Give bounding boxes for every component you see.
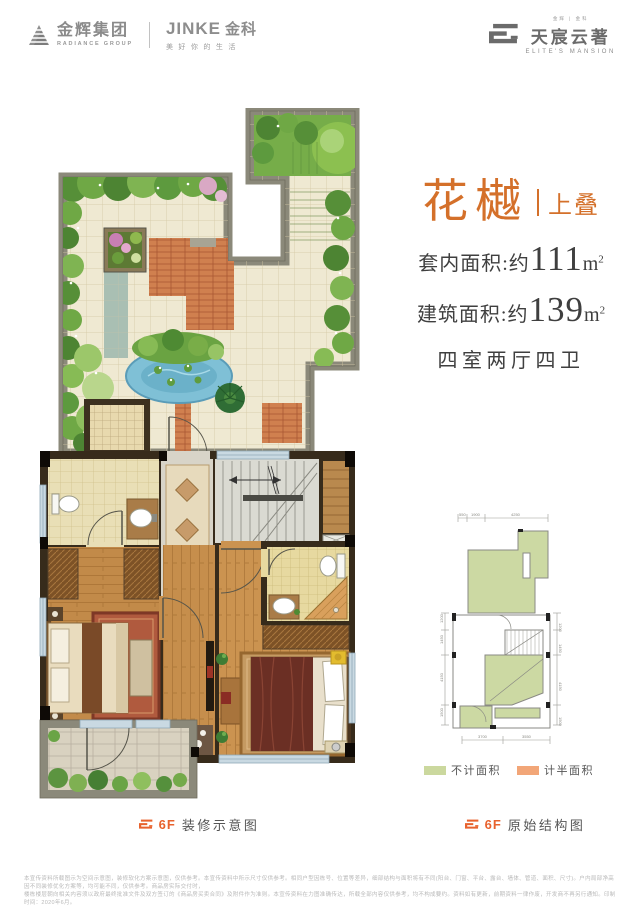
bathroom-2	[261, 541, 355, 625]
legend-no-area: 不计面积	[424, 762, 501, 778]
caption-left-label: 装修示意图	[182, 815, 260, 834]
structural-diagram: 550 1900 4250 1200 1450 4150 1500 1200 1…	[440, 503, 615, 758]
dim-left-2: 1450	[440, 634, 444, 644]
estate-sub: ELITE'S MANSION	[526, 49, 617, 55]
roof-garden	[56, 108, 360, 458]
dim-top-1: 550	[459, 512, 466, 517]
dim-bottom-2: 3550	[522, 734, 532, 739]
cloud-mark-icon	[465, 819, 479, 831]
dim-right-1: 1200	[558, 623, 563, 633]
build-area-row: 建筑面积:约139m2	[395, 290, 627, 330]
jinke-cn: 金科	[225, 18, 257, 39]
no-area-label: 不计面积	[451, 762, 501, 778]
no-area-swatch	[424, 766, 446, 775]
caption-right-floor: 6F	[485, 817, 502, 832]
dim-right-3: 4150	[558, 682, 563, 692]
master-bedroom	[46, 547, 159, 723]
interior-floor	[40, 451, 355, 798]
lower-terrace	[40, 720, 197, 798]
inner-area-label: 套内面积:约	[418, 247, 530, 276]
title-divider	[537, 189, 539, 216]
mountain-icon	[26, 22, 52, 48]
jinke-name: JINKE	[166, 19, 221, 39]
cloud-mark-icon	[139, 819, 153, 831]
jinke-logo: JINKE 金科 美好你的生活	[166, 18, 257, 52]
inner-area-row: 套内面积:约111m2	[395, 239, 627, 279]
dim-bottom-1: 3700	[478, 734, 488, 739]
floorplan-illustration	[38, 108, 360, 800]
build-area-label: 建筑面积:约	[417, 298, 529, 327]
legend-half-area: 计半面积	[517, 762, 594, 778]
caption-left-floor: 6F	[159, 817, 176, 832]
jinke-tagline: 美好你的生活	[166, 42, 257, 52]
dim-left-4: 1500	[440, 707, 444, 717]
dim-right-2: 1450	[558, 644, 563, 654]
unit-info: 花樾 上叠 套内面积:约111m2 建筑面积:约139m2 四室两厅四卫	[395, 176, 627, 373]
build-area-value: 139	[529, 290, 585, 330]
caption-right: 6F 原始结构图	[430, 815, 620, 834]
dim-top-2: 1900	[471, 512, 481, 517]
dim-left-3: 4150	[440, 672, 444, 682]
unit-title: 花樾	[422, 176, 528, 228]
estate-mark-icon	[489, 22, 519, 49]
area-legend: 不计面积 计半面积	[424, 762, 594, 778]
bathroom-1	[48, 459, 159, 548]
staircase	[215, 459, 319, 543]
header-left: 金辉集团 RADIANCE GROUP JINKE 金科 美好你的生活	[26, 18, 257, 52]
dim-top-3: 4250	[511, 512, 521, 517]
disclaimer-line-1: 本宣传资料所载图示为空间示意图，装修软化方案示意图，仅供参考。本宣传资料中所示尺…	[24, 875, 618, 891]
unit-tag: 上叠	[548, 185, 600, 220]
header-divider	[149, 22, 150, 48]
radiance-logo: 金辉集团 RADIANCE GROUP	[26, 22, 133, 48]
half-area-swatch	[517, 766, 539, 775]
rooms-summary: 四室两厅四卫	[395, 344, 627, 373]
header-right: 金辉 | 金科 天宸云著 ELITE'S MANSION	[489, 16, 617, 55]
inner-area-value: 111	[530, 239, 583, 279]
estate-top: 金辉 | 金科	[553, 16, 589, 22]
dim-right-4: 1500	[558, 717, 563, 727]
estate-name: 天宸云著	[531, 23, 611, 48]
caption-right-label: 原始结构图	[508, 815, 586, 834]
closet	[323, 461, 349, 545]
radiance-sub: RADIANCE GROUP	[57, 41, 133, 47]
disclaimer-line-2: 楼栋楼层朝向相关内容须以政府最终批准文件及双方签订的《商品房买卖合同》及附件作为…	[24, 891, 618, 907]
dim-left-1: 1200	[440, 613, 444, 623]
half-area-label: 计半面积	[544, 762, 594, 778]
disclaimer: 本宣传资料所载图示为空间示意图，装修软化方案示意图，仅供参考。本宣传资料中所示尺…	[24, 875, 618, 907]
caption-left: 6F 装修示意图	[38, 815, 360, 834]
radiance-name: 金辉集团	[57, 23, 133, 39]
